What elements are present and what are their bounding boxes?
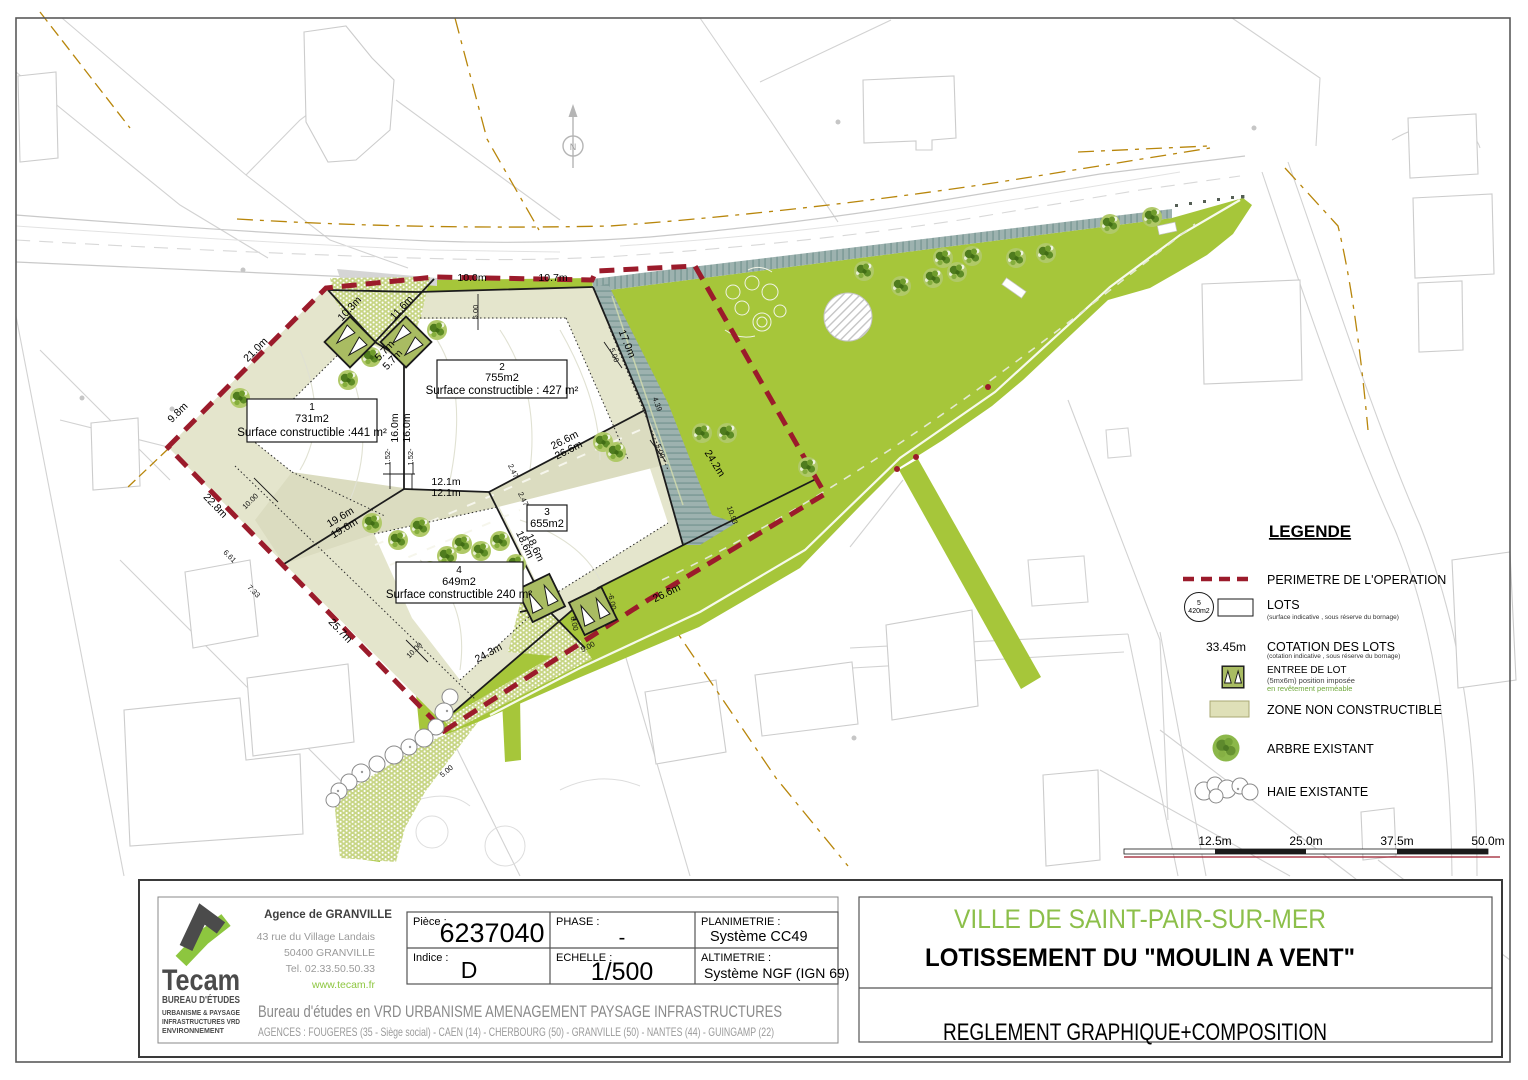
svg-text:(cotation indicative , sous ré: (cotation indicative , sous réserve du b… (1267, 653, 1400, 660)
svg-text:ARBRE EXISTANT: ARBRE EXISTANT (1267, 742, 1374, 756)
svg-text:D: D (461, 957, 478, 983)
svg-text:LOTISSEMENT DU "MOULIN A VENT": LOTISSEMENT DU "MOULIN A VENT" (925, 944, 1355, 972)
svg-text:50400 GRANVILLE: 50400 GRANVILLE (284, 947, 375, 959)
svg-text:ENVIRONNEMENT: ENVIRONNEMENT (162, 1026, 224, 1035)
svg-text:PERIMETRE DE L'OPERATION: PERIMETRE DE L'OPERATION (1267, 573, 1446, 587)
svg-text:16.0m: 16.0m (389, 413, 401, 442)
svg-text:Système NGF (IGN 69): Système NGF (IGN 69) (704, 965, 849, 981)
svg-text:ALTIMETRIE :: ALTIMETRIE : (701, 952, 771, 964)
svg-text:731m2: 731m2 (295, 413, 329, 425)
svg-text:43 rue du Village Landais: 43 rue du Village Landais (257, 931, 375, 943)
svg-text:755m2: 755m2 (485, 372, 519, 384)
svg-text:649m2: 649m2 (442, 576, 476, 588)
svg-text:Surface constructible :441 m²: Surface constructible :441 m² (237, 427, 387, 439)
svg-text:1.52-: 1.52- (383, 448, 392, 466)
svg-text:1/500: 1/500 (591, 958, 654, 986)
svg-text:5: 5 (1197, 600, 1201, 607)
svg-text:-: - (619, 927, 626, 949)
svg-text:1: 1 (309, 402, 315, 413)
svg-text:en revêtement perméable: en revêtement perméable (1267, 684, 1352, 693)
svg-text:655m2: 655m2 (530, 518, 564, 530)
svg-text:VILLE DE SAINT-PAIR-SUR-MER: VILLE DE SAINT-PAIR-SUR-MER (954, 904, 1326, 934)
svg-text:6237040: 6237040 (439, 918, 544, 948)
svg-text:AGENCES : FOUGERES (35 - Sièg: AGENCES : FOUGERES (35 - Siège social) -… (258, 1025, 774, 1039)
svg-text:PLANIMETRIE :: PLANIMETRIE : (701, 916, 780, 928)
svg-text:Agence de GRANVILLE: Agence de GRANVILLE (264, 909, 392, 921)
svg-text:INFRASTRUCTURES VRD: INFRASTRUCTURES VRD (162, 1017, 240, 1026)
svg-text:N: N (570, 142, 577, 152)
svg-text:Indice :: Indice : (413, 952, 448, 964)
svg-text:50.0m: 50.0m (1471, 834, 1504, 848)
svg-text:4: 4 (456, 565, 462, 576)
svg-text:Bureau d'études en VRD URBANI: Bureau d'études en VRD URBANISME AMENAGE… (258, 1002, 782, 1021)
svg-text:Système CC49: Système CC49 (710, 929, 808, 945)
svg-text:LOTS: LOTS (1267, 598, 1300, 612)
svg-text:420m2: 420m2 (1188, 608, 1210, 615)
svg-text:25.0m: 25.0m (1289, 834, 1322, 848)
svg-text:COTATION DES LOTS: COTATION DES LOTS (1267, 640, 1395, 654)
svg-text:Tecam: Tecam (162, 964, 240, 997)
svg-text:33.45m: 33.45m (1206, 640, 1246, 654)
svg-text:PHASE :: PHASE : (556, 916, 599, 928)
svg-text:URBANISME & PAYSAGE: URBANISME & PAYSAGE (162, 1008, 240, 1017)
svg-text:10.7m: 10.7m (538, 272, 567, 284)
svg-text:Tel. 02.33.50.50.33: Tel. 02.33.50.50.33 (286, 963, 375, 975)
svg-text:Surface constructible 240 m²: Surface constructible 240 m² (386, 589, 533, 601)
svg-text:HAIE EXISTANTE: HAIE EXISTANTE (1267, 785, 1368, 799)
svg-text:12.5m: 12.5m (1198, 834, 1231, 848)
svg-text:12.1m: 12.1m (431, 487, 460, 499)
svg-text:Surface constructible : 427 m²: Surface constructible : 427 m² (426, 385, 579, 397)
svg-text:www.tecam.fr: www.tecam.fr (311, 979, 376, 991)
svg-text:(surface indicative , sous rés: (surface indicative , sous réserve du bo… (1267, 614, 1399, 621)
svg-text:BUREAU D'ÉTUDES: BUREAU D'ÉTUDES (162, 993, 240, 1006)
svg-text:REGLEMENT GRAPHIQUE+COMPOSITIO: REGLEMENT GRAPHIQUE+COMPOSITION (943, 1019, 1327, 1046)
svg-text:37.5m: 37.5m (1380, 834, 1413, 848)
svg-text:16.0m: 16.0m (401, 413, 413, 442)
svg-text:ENTREE DE LOT: ENTREE DE LOT (1267, 665, 1346, 676)
svg-text:5.00: 5.00 (471, 305, 480, 320)
svg-text:LEGENDE: LEGENDE (1269, 522, 1351, 541)
svg-text:10.0m: 10.0m (457, 272, 486, 284)
svg-text:1.52-: 1.52- (406, 448, 415, 466)
svg-text:3: 3 (544, 507, 550, 518)
svg-text:ZONE NON CONSTRUCTIBLE: ZONE NON CONSTRUCTIBLE (1267, 703, 1442, 717)
